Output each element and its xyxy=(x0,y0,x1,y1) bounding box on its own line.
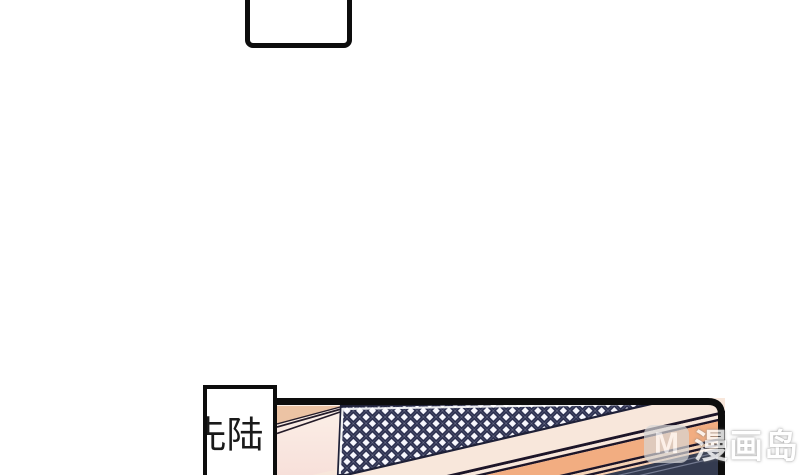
watermark-logo-box: M xyxy=(644,425,689,463)
watermark-site-name: 漫画岛 xyxy=(694,419,799,468)
speech-bubble-top xyxy=(245,0,352,48)
comic-page: 陆先 M 漫画岛 xyxy=(0,0,800,475)
speech-text: 陆先 xyxy=(220,415,260,475)
speech-bubble-bottom: 陆先 xyxy=(203,385,277,475)
watermark: M 漫画岛 xyxy=(644,419,799,468)
watermark-logo-letter: M xyxy=(654,429,679,459)
